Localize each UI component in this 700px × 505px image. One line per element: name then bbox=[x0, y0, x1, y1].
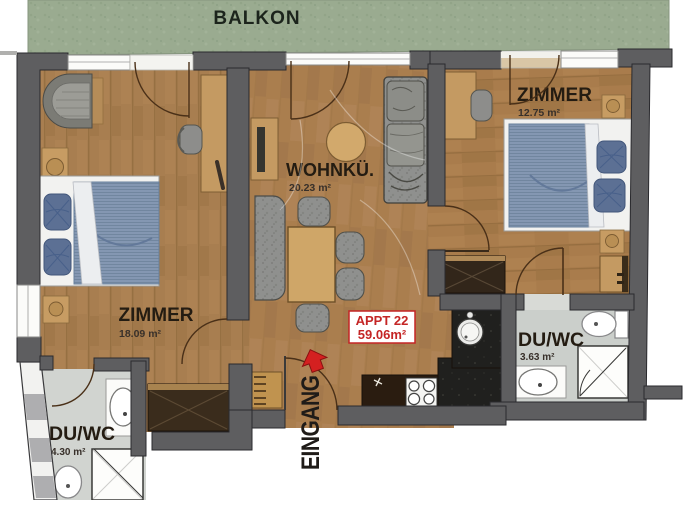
svg-text:3.63 m²: 3.63 m² bbox=[520, 352, 555, 363]
svg-text:APPT 22: APPT 22 bbox=[356, 313, 409, 328]
svg-text:4.30 m²: 4.30 m² bbox=[51, 447, 86, 458]
svg-text:ZIMMER: ZIMMER bbox=[119, 305, 194, 326]
svg-text:BALKON: BALKON bbox=[213, 8, 300, 29]
svg-text:EINGANG: EINGANG bbox=[296, 376, 324, 470]
svg-text:18.09 m²: 18.09 m² bbox=[119, 328, 162, 340]
svg-text:ZIMMER: ZIMMER bbox=[517, 85, 592, 106]
svg-text:12.75 m²: 12.75 m² bbox=[518, 107, 561, 119]
svg-text:DU/WC: DU/WC bbox=[49, 423, 115, 445]
svg-text:59.06m²: 59.06m² bbox=[358, 327, 407, 342]
svg-text:DU/WC: DU/WC bbox=[518, 329, 584, 351]
